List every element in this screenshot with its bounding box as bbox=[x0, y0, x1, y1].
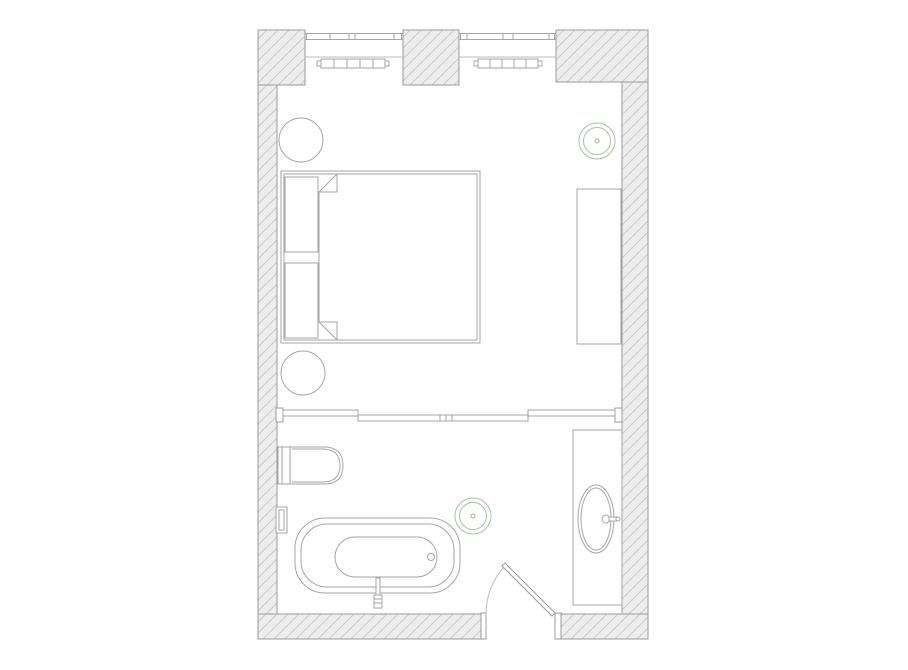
partition-panel bbox=[440, 415, 528, 421]
door-jamb-right bbox=[555, 613, 561, 639]
bed-pillow-upper bbox=[285, 177, 318, 252]
round-side-table-upper-shape bbox=[279, 118, 323, 162]
radiator-left bbox=[317, 59, 389, 68]
bed-pillow-upper-shape bbox=[285, 177, 318, 252]
wall-pier-top-right bbox=[556, 30, 648, 82]
radiator-end-tab bbox=[474, 61, 478, 66]
partition-bracket-left bbox=[276, 408, 283, 422]
wall-right bbox=[622, 82, 648, 639]
partition-panel bbox=[283, 410, 358, 416]
center-dot bbox=[471, 514, 475, 518]
radiator-end-tab bbox=[317, 61, 321, 66]
faucet-handle bbox=[374, 595, 382, 608]
ceiling-light-bathroom-shape bbox=[460, 503, 487, 530]
bed-duvet-shape bbox=[319, 174, 477, 340]
wall-left-shape bbox=[258, 85, 277, 639]
bathroom-door bbox=[481, 563, 561, 639]
wall-pier-top-left-shape bbox=[258, 30, 305, 85]
sliding-glass-partition bbox=[276, 408, 622, 422]
ceiling-light-bedroom-shape bbox=[579, 123, 615, 159]
dresser-console bbox=[577, 189, 621, 344]
wall-niche bbox=[276, 507, 287, 533]
ceiling-light-bedroom bbox=[579, 123, 615, 159]
bed-duvet bbox=[319, 174, 477, 340]
floor-plan-canvas bbox=[0, 0, 908, 670]
wall-bottom-left-shape bbox=[258, 614, 481, 639]
radiator-end-tab bbox=[538, 61, 542, 66]
dresser-console-shape bbox=[577, 189, 621, 344]
partition-panel bbox=[358, 415, 440, 421]
ceiling-light-bathroom bbox=[455, 498, 491, 534]
window-right bbox=[459, 34, 556, 58]
bed-pillow-lower-shape bbox=[285, 263, 318, 338]
radiator-left-shape bbox=[321, 59, 385, 68]
radiator-right bbox=[474, 59, 542, 68]
faucet-stem bbox=[376, 578, 380, 596]
wall-bottom-left bbox=[258, 614, 481, 639]
partition-bracket-right bbox=[615, 408, 622, 422]
center-dot bbox=[595, 139, 599, 143]
wall-pier-top-center bbox=[403, 30, 459, 85]
wall-pier-top-right-shape bbox=[556, 30, 648, 82]
toilet bbox=[278, 447, 343, 484]
wall-bottom-right bbox=[561, 614, 648, 639]
door-swing-arc bbox=[486, 565, 506, 614]
radiator-end-tab bbox=[385, 61, 389, 66]
sink-faucet-shape bbox=[616, 517, 620, 521]
round-side-table-upper bbox=[279, 118, 323, 162]
wall-left bbox=[258, 85, 277, 639]
ceiling-light-bedroom-shape bbox=[584, 128, 611, 155]
bed-pillow-lower bbox=[285, 263, 318, 338]
round-side-table-lower-shape bbox=[281, 351, 325, 395]
wall-pier-top-center-shape bbox=[403, 30, 459, 85]
wall-pier-top-left bbox=[258, 30, 305, 85]
round-side-table-lower bbox=[281, 351, 325, 395]
window-left bbox=[305, 34, 403, 58]
ceiling-light-bathroom-shape bbox=[455, 498, 491, 534]
radiator-right-shape bbox=[478, 59, 538, 68]
floor-plan-page bbox=[0, 0, 908, 670]
wall-niche-shape bbox=[276, 507, 287, 533]
toilet-tank bbox=[278, 447, 290, 484]
wall-right-shape bbox=[622, 82, 648, 639]
door-jamb-left bbox=[481, 613, 486, 639]
wall-bottom-right-shape bbox=[561, 614, 648, 639]
door-leaf bbox=[502, 563, 555, 616]
partition-panel bbox=[528, 410, 615, 416]
